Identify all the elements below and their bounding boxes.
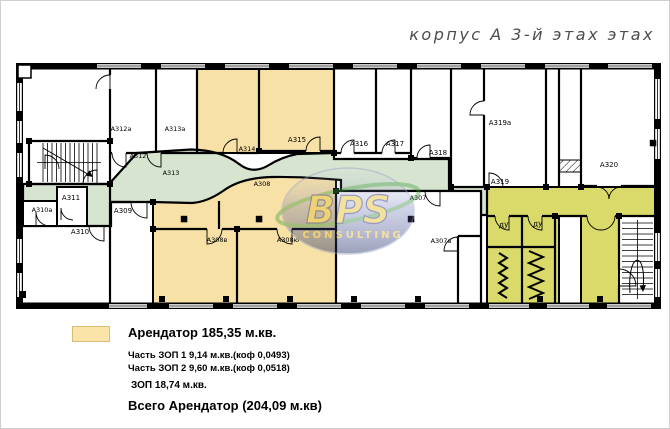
room-label-a312a: A312а xyxy=(111,125,132,133)
windows-bottom xyxy=(109,304,651,308)
room-label-a319: A319 xyxy=(491,178,509,186)
legend-tenant-swatch xyxy=(72,326,110,342)
watermark-brand: BPS xyxy=(306,188,390,232)
room-label-a318: A318 xyxy=(429,149,447,157)
room-label-a312: A312 xyxy=(130,152,147,160)
room-label-a311: A311 xyxy=(62,194,80,202)
room-label-a319a: A319а xyxy=(489,119,511,127)
legend-zop2: Часть ЗОП 2 9,60 м.кв.(коф 0,0518) xyxy=(128,363,290,374)
shaft-right xyxy=(559,216,581,304)
room-label-a307a: A307а xyxy=(431,237,452,245)
room-label-a313a: A313а xyxy=(165,125,186,133)
room-label-a315: A315 xyxy=(288,136,306,144)
room-label-du2: ду xyxy=(531,218,544,229)
room-label-a308v: A308в xyxy=(207,236,228,244)
room-label-a320: A320 xyxy=(600,161,618,169)
room-label-a317: A317 xyxy=(386,140,404,148)
room-label-a310a: A310а xyxy=(32,206,53,214)
floor-plan-sheet: корпус А 3-й этах этах xyxy=(0,0,670,429)
room-label-a308: A308 xyxy=(254,180,271,188)
legend-zop1: Часть ЗОП 1 9,14 м.кв.(коф 0,0493) xyxy=(128,350,290,361)
watermark-subtitle: CONSULTING xyxy=(302,230,403,241)
tenant-zone-top xyxy=(197,69,334,153)
room-label-a310: A310 xyxy=(71,228,89,236)
room-label-a313: A313 xyxy=(163,169,180,177)
room-label-a316: A316 xyxy=(350,140,369,148)
duct-hatch xyxy=(559,160,581,172)
windows-top xyxy=(97,64,652,68)
legend-zop-total: ЗОП 18,74 м.кв. xyxy=(131,380,207,391)
floor-plan-drawing: A310а A311 A310 A309 A312а A312 A313а A3… xyxy=(1,1,670,429)
legend-grand-total: Всего Арендатор (204,09 м.кв) xyxy=(128,398,322,413)
entry-box xyxy=(18,65,31,78)
room-label-a309: A309 xyxy=(114,207,132,215)
room-label-du1: ду xyxy=(497,219,510,230)
room-label-a314: A314 xyxy=(239,145,256,153)
legend-tenant-area: Арендатор 185,35 м.кв. xyxy=(128,325,276,340)
